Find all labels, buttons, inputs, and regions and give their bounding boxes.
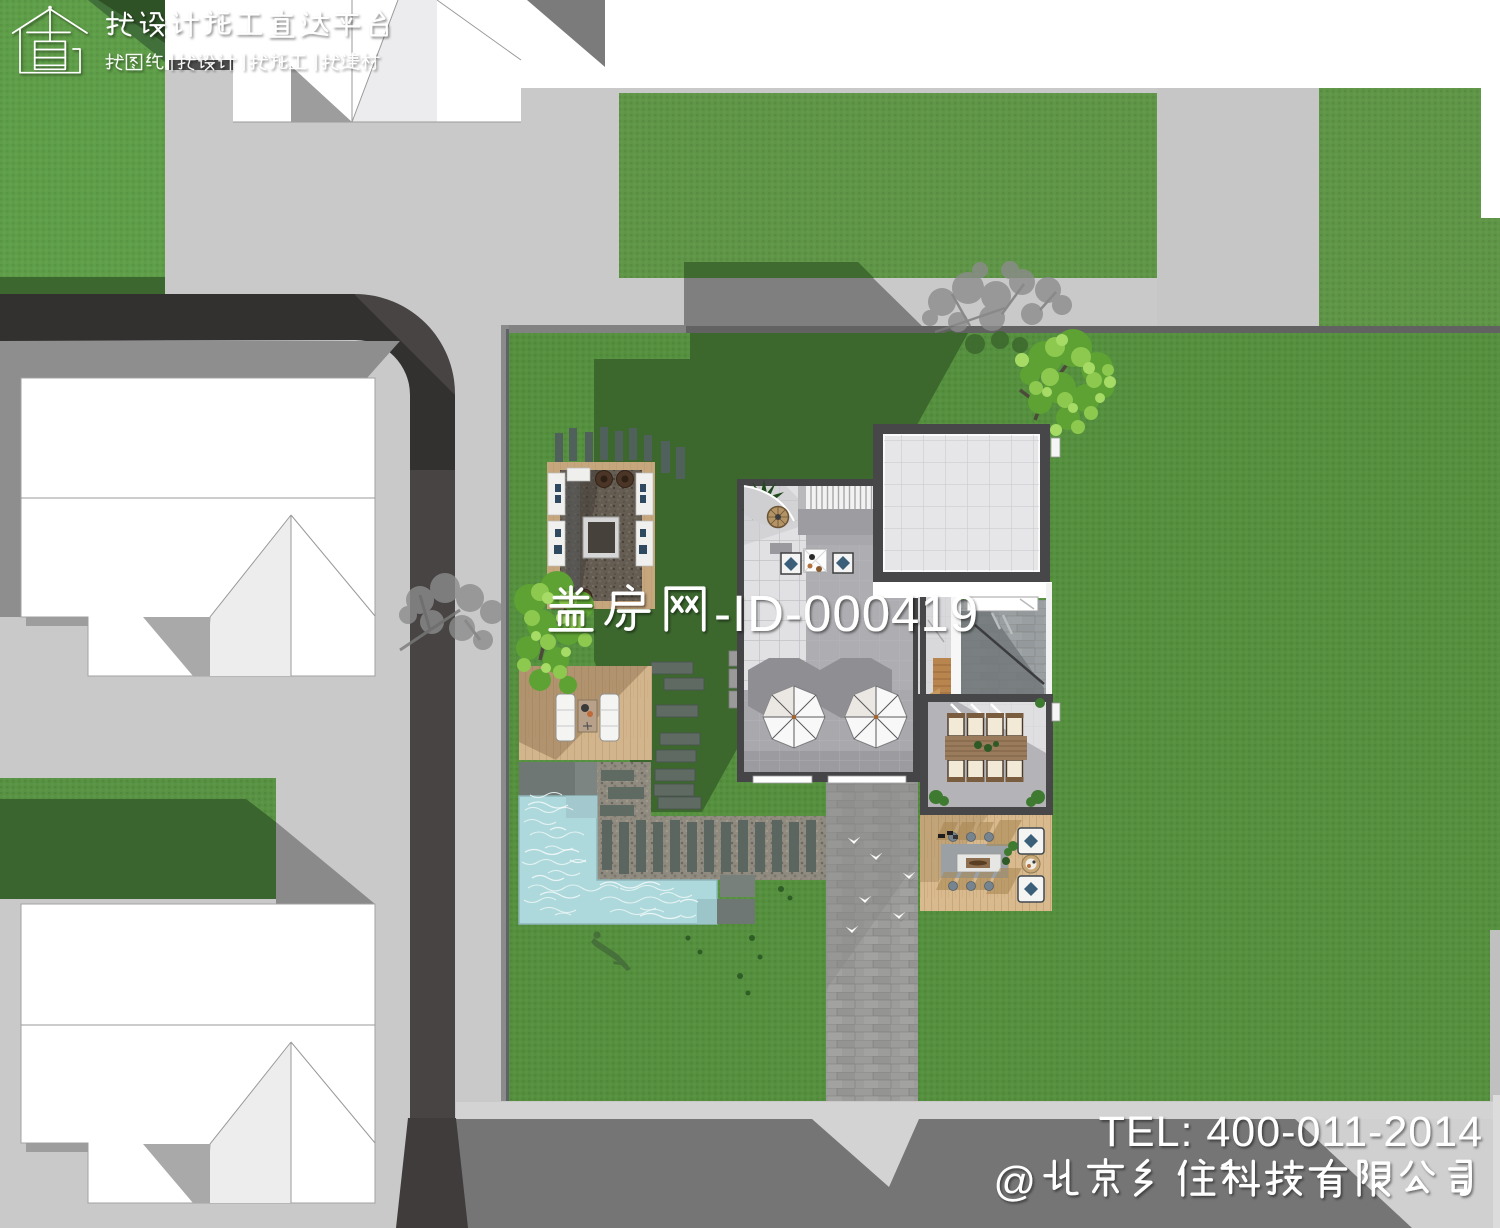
svg-text:-ID-000419: -ID-000419 (714, 585, 979, 642)
svg-text:TEL: 400-011-2014: TEL: 400-011-2014 (1099, 1108, 1483, 1156)
svg-text:@: @ (993, 1158, 1036, 1205)
